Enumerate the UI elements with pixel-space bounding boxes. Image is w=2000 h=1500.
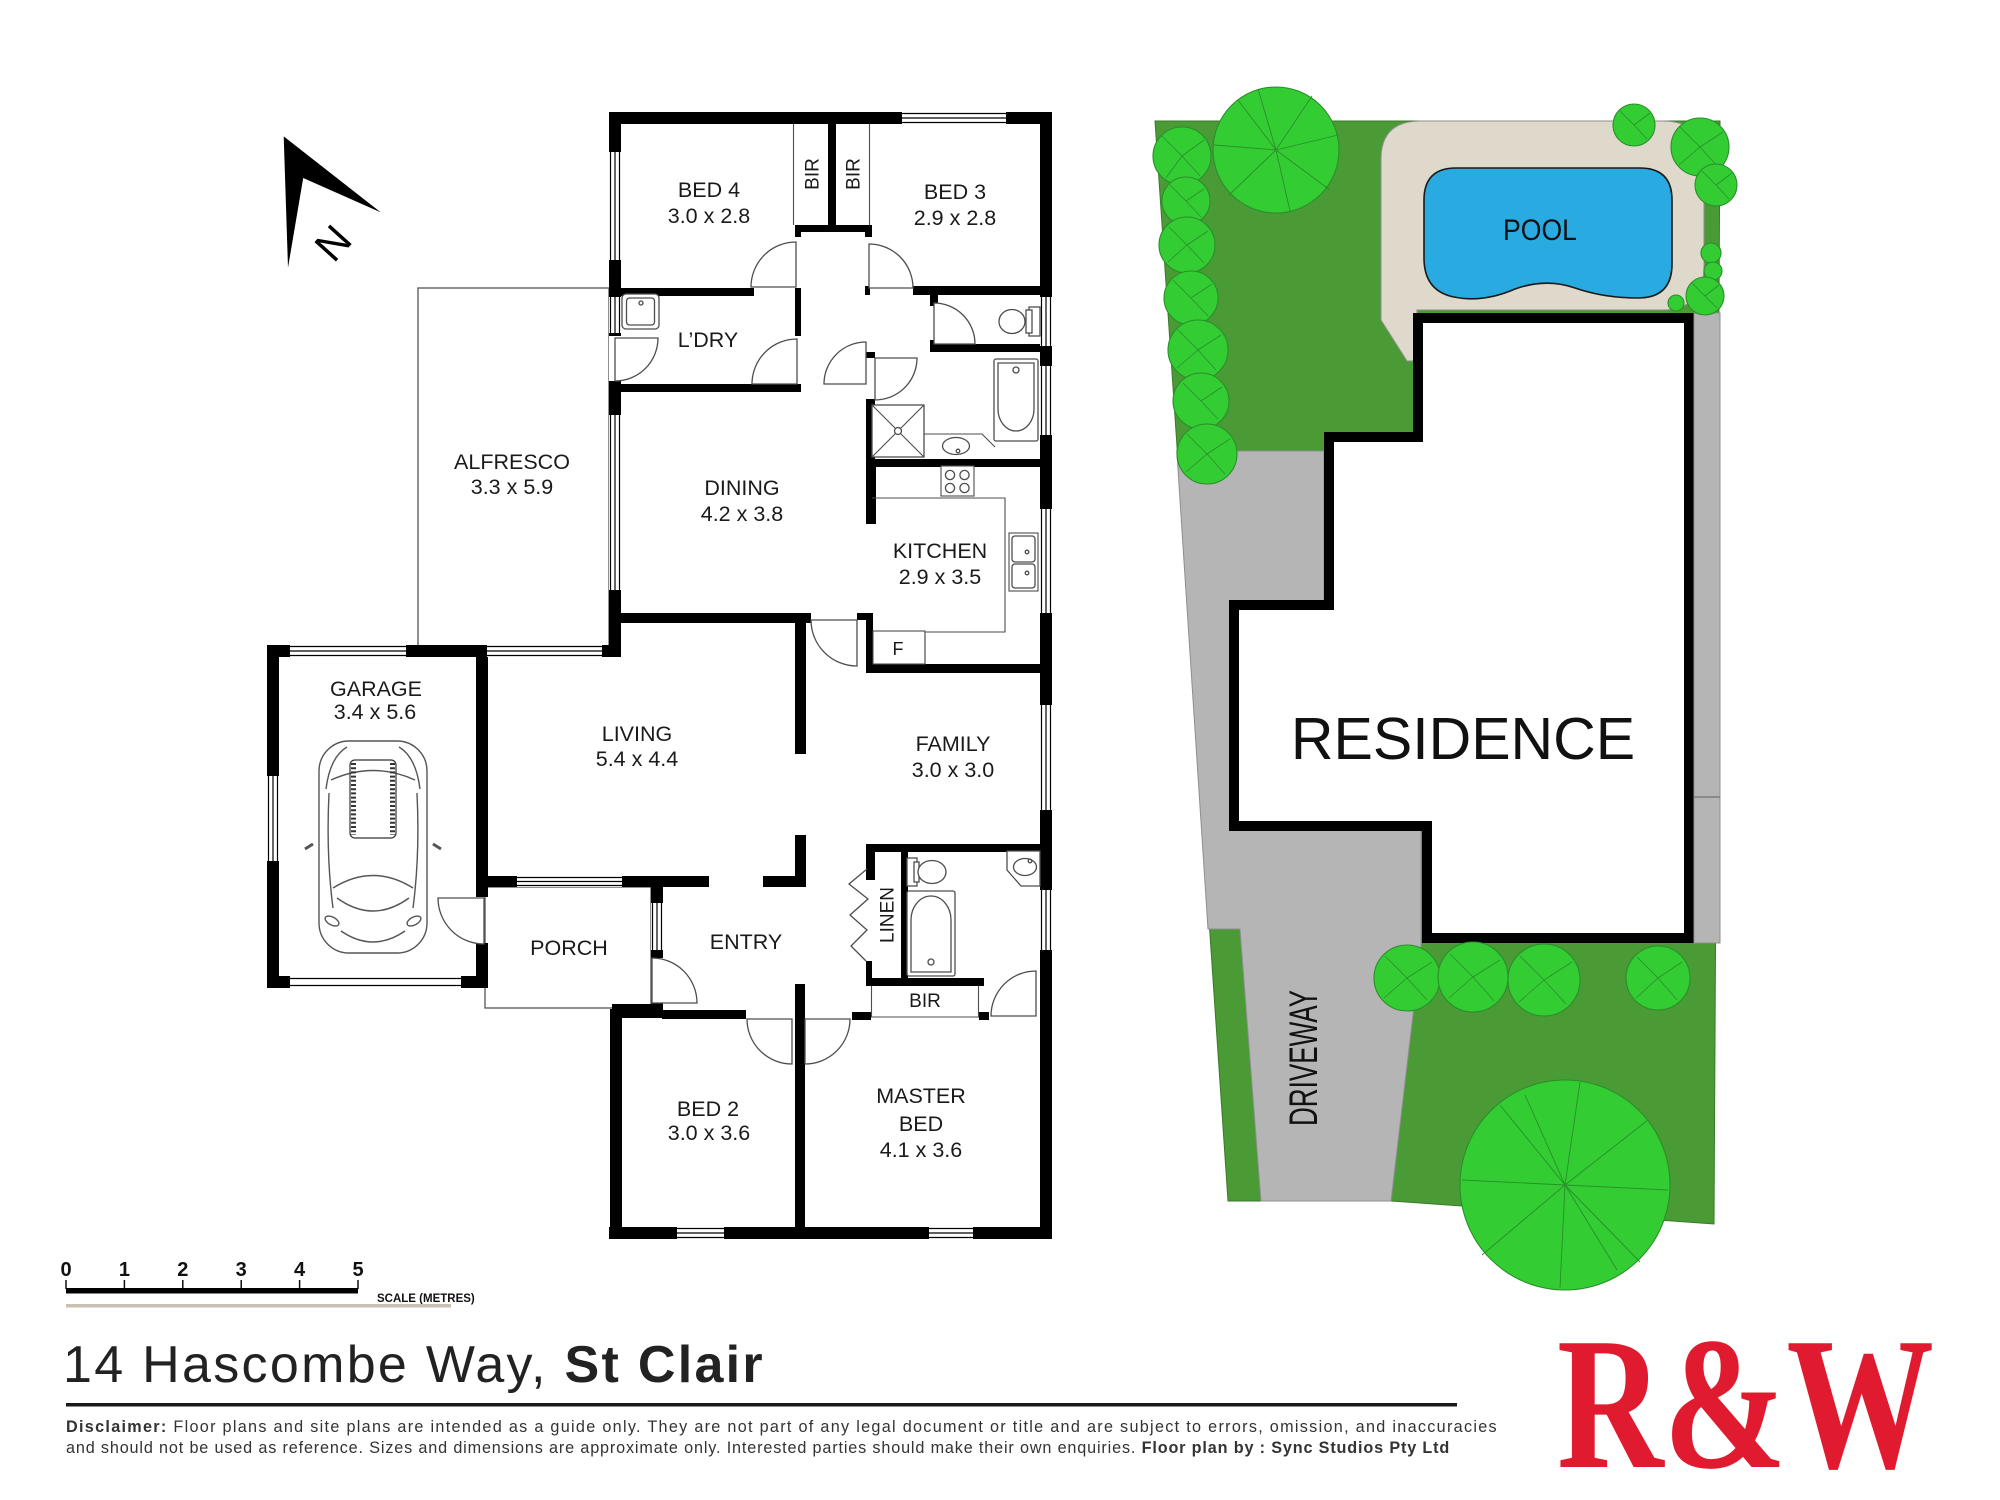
- svg-text:ENTRY: ENTRY: [710, 930, 782, 954]
- svg-text:3.0 x 3.6: 3.0 x 3.6: [668, 1121, 751, 1145]
- svg-text:4.1 x 3.6: 4.1 x 3.6: [880, 1138, 963, 1162]
- svg-text:SCALE (METRES): SCALE (METRES): [377, 1293, 475, 1305]
- svg-text:3.3 x 5.9: 3.3 x 5.9: [471, 475, 553, 499]
- svg-text:2: 2: [177, 1259, 188, 1281]
- svg-text:BED 2: BED 2: [677, 1097, 739, 1121]
- svg-text:BIR: BIR: [909, 991, 941, 1012]
- svg-text:BED 3: BED 3: [924, 180, 986, 204]
- svg-text:LINEN: LINEN: [878, 887, 899, 943]
- svg-text:LIVING: LIVING: [602, 722, 673, 746]
- svg-text:PORCH: PORCH: [530, 936, 608, 960]
- svg-text:5: 5: [352, 1259, 363, 1281]
- svg-text:0: 0: [60, 1259, 71, 1281]
- svg-text:3.0 x 2.8: 3.0 x 2.8: [668, 204, 751, 228]
- svg-text:BED: BED: [899, 1112, 943, 1136]
- svg-text:F: F: [893, 639, 904, 659]
- svg-text:MASTER: MASTER: [876, 1084, 966, 1108]
- svg-text:R&W: R&W: [1557, 1299, 1934, 1500]
- svg-text:Disclaimer: Floor plans and si: Disclaimer: Floor plans and site plans a…: [66, 1418, 1498, 1436]
- svg-text:GARAGE: GARAGE: [330, 677, 422, 701]
- svg-text:BIR: BIR: [844, 158, 865, 190]
- svg-text:FAMILY: FAMILY: [916, 732, 991, 756]
- svg-text:2.9 x 2.8: 2.9 x 2.8: [914, 206, 997, 230]
- svg-text:and should not be used as refe: and should not be used as reference. Siz…: [66, 1439, 1450, 1457]
- svg-text:2.9 x 3.5: 2.9 x 3.5: [899, 565, 982, 589]
- svg-text:4: 4: [294, 1259, 306, 1281]
- svg-text:BED 4: BED 4: [678, 178, 740, 202]
- svg-text:3.0 x 3.0: 3.0 x 3.0: [912, 758, 995, 782]
- svg-text:1: 1: [119, 1259, 130, 1281]
- svg-text:DINING: DINING: [704, 476, 779, 500]
- svg-text:3: 3: [236, 1259, 247, 1281]
- svg-text:BIR: BIR: [803, 158, 824, 190]
- svg-text:4.2 x 3.8: 4.2 x 3.8: [701, 502, 784, 526]
- svg-text:3.4 x 5.6: 3.4 x 5.6: [334, 700, 417, 724]
- svg-text:KITCHEN: KITCHEN: [893, 539, 987, 563]
- svg-text:RESIDENCE: RESIDENCE: [1291, 706, 1635, 772]
- svg-text:DRIVEWAY: DRIVEWAY: [1282, 990, 1326, 1126]
- svg-text:ALFRESCO: ALFRESCO: [454, 450, 570, 474]
- svg-text:L’DRY: L’DRY: [678, 328, 739, 352]
- svg-text:14 Hascombe Way, St Clair: 14 Hascombe Way, St Clair: [63, 1336, 765, 1394]
- svg-text:POOL: POOL: [1503, 214, 1577, 247]
- svg-text:5.4 x 4.4: 5.4 x 4.4: [596, 747, 679, 771]
